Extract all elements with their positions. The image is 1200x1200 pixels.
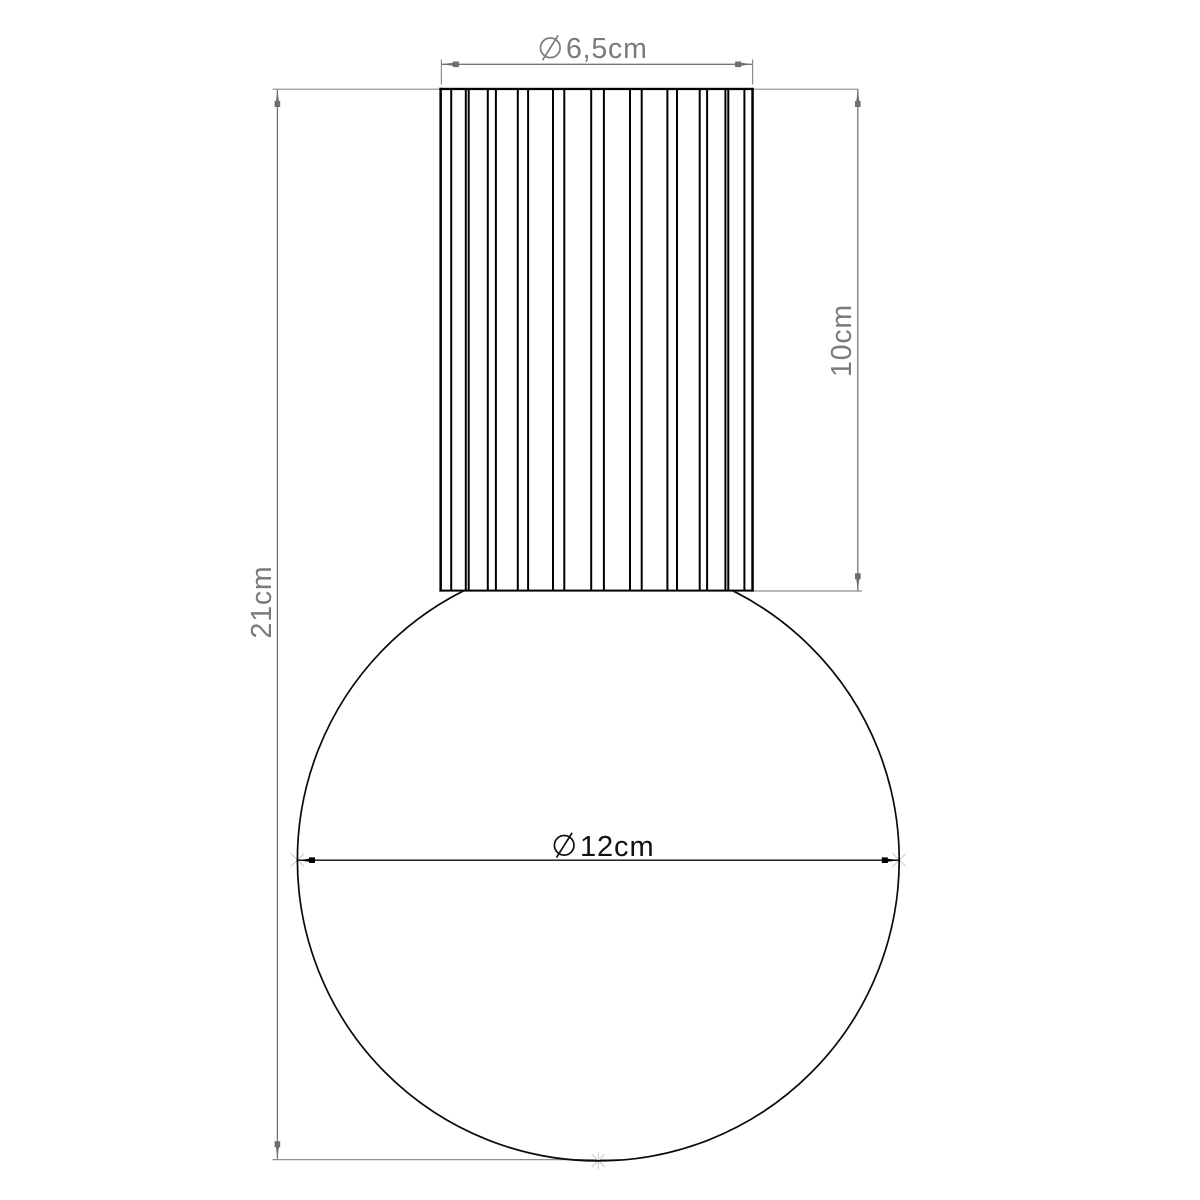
svg-text:10cm: 10cm	[826, 304, 858, 377]
svg-text:12cm: 12cm	[580, 831, 655, 863]
svg-text:21cm: 21cm	[246, 566, 278, 639]
svg-text:6,5cm: 6,5cm	[566, 33, 648, 65]
